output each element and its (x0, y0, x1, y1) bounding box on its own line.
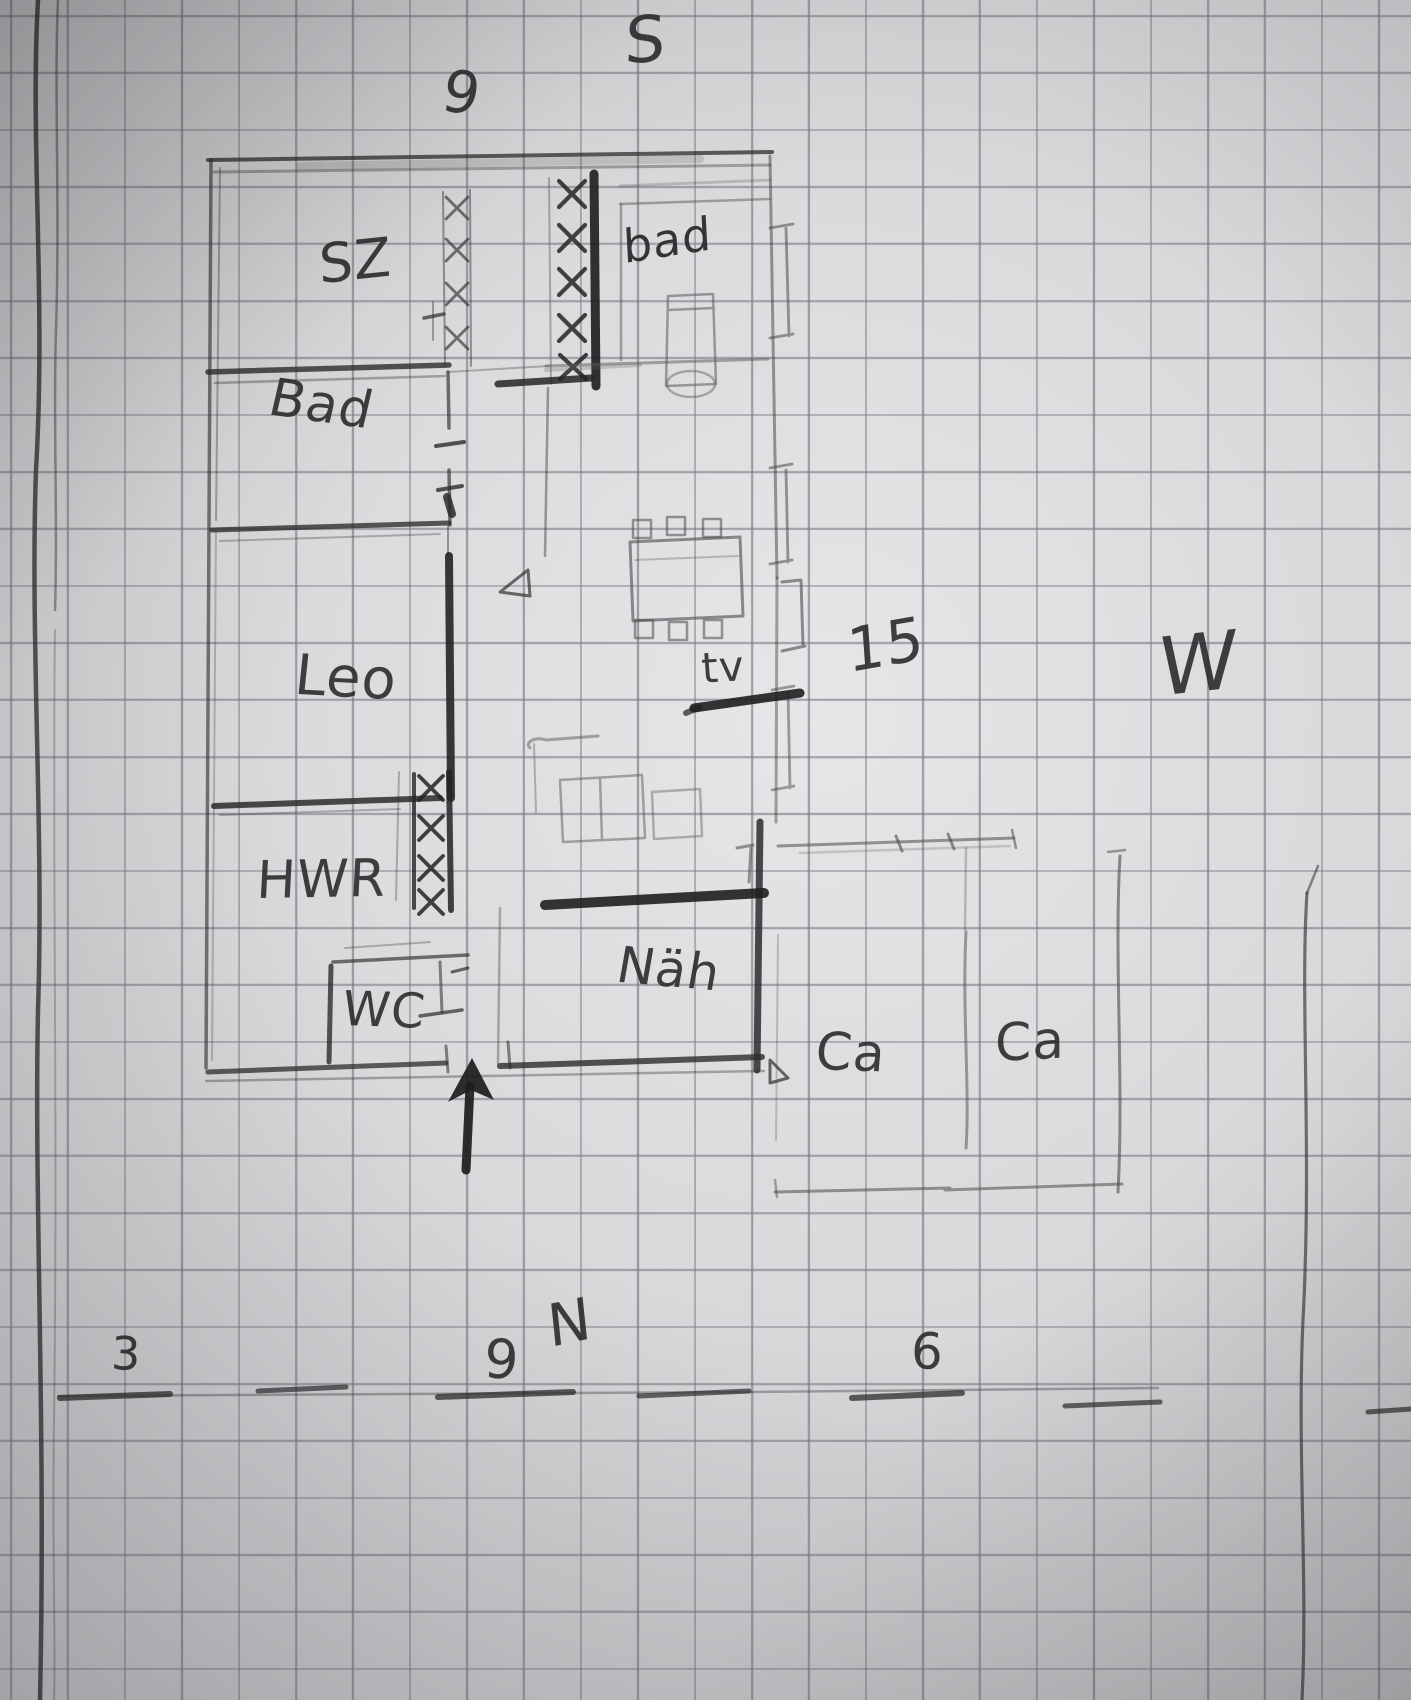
room-label-leo: Leo (292, 648, 400, 709)
room-label-kitchen: Näh (613, 940, 724, 998)
stove-fixture (652, 789, 702, 839)
living-area-size-label: 15 (845, 608, 926, 682)
graph-paper-page: SZ bad Bad Leo HWR WC Näh tv 15 Ca Ca W … (0, 0, 1411, 1700)
tv-label: tv (700, 645, 746, 690)
hatched-wall-hall (498, 174, 596, 386)
carport-label-right: Ca (995, 1014, 1065, 1070)
leo-room-wall (448, 388, 548, 798)
compass-south-label: S (624, 7, 668, 74)
dimension-line (58, 1387, 1411, 1412)
dining-table (630, 517, 743, 640)
compass-north-label: N (545, 1289, 595, 1356)
room-label-bath-small: bad (622, 210, 713, 270)
tv-bench-mark (686, 693, 800, 713)
hatched-wall-bedroom (446, 197, 468, 349)
room-label-utility: HWR (255, 853, 387, 907)
room-label-bedroom: SZ (318, 230, 393, 292)
room-label-bath: Bad (264, 372, 378, 437)
chair (635, 620, 653, 638)
compass-west-label: W (1157, 620, 1239, 709)
chair (704, 620, 722, 638)
carport-outline (770, 830, 1125, 1197)
chair (633, 520, 651, 538)
chair (669, 622, 687, 640)
kitchen-counter (498, 736, 764, 1064)
carport-label-left: Ca (813, 1026, 888, 1080)
dimension-bottom-center-label: 9 (482, 1332, 521, 1388)
room-label-wc: WC (340, 985, 428, 1036)
sink-fixture (560, 775, 645, 842)
dimension-bottom-right-label: 6 (910, 1326, 945, 1377)
dimension-bottom-left-label: 3 (110, 1330, 142, 1377)
hatched-shaft-block (414, 772, 451, 914)
window-door-marks (737, 224, 805, 882)
chair (703, 519, 721, 537)
chair (667, 517, 685, 535)
